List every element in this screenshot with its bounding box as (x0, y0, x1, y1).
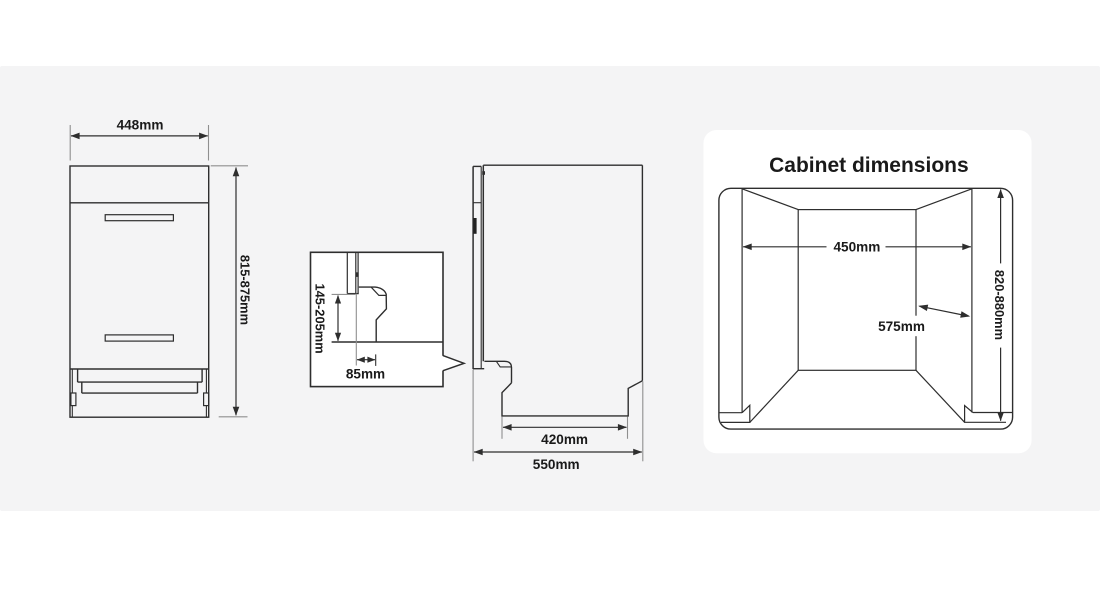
svg-text:448mm: 448mm (117, 118, 164, 133)
svg-text:575mm: 575mm (878, 319, 925, 334)
svg-text:145-205mm: 145-205mm (313, 283, 328, 353)
svg-text:450mm: 450mm (833, 239, 880, 254)
svg-text:Cabinet dimensions: Cabinet dimensions (769, 154, 969, 177)
svg-text:550mm: 550mm (533, 457, 580, 472)
svg-text:420mm: 420mm (541, 432, 588, 447)
svg-text:815-875mm: 815-875mm (238, 255, 253, 325)
svg-text:820-880mm: 820-880mm (992, 270, 1007, 340)
svg-text:85mm: 85mm (346, 366, 385, 381)
